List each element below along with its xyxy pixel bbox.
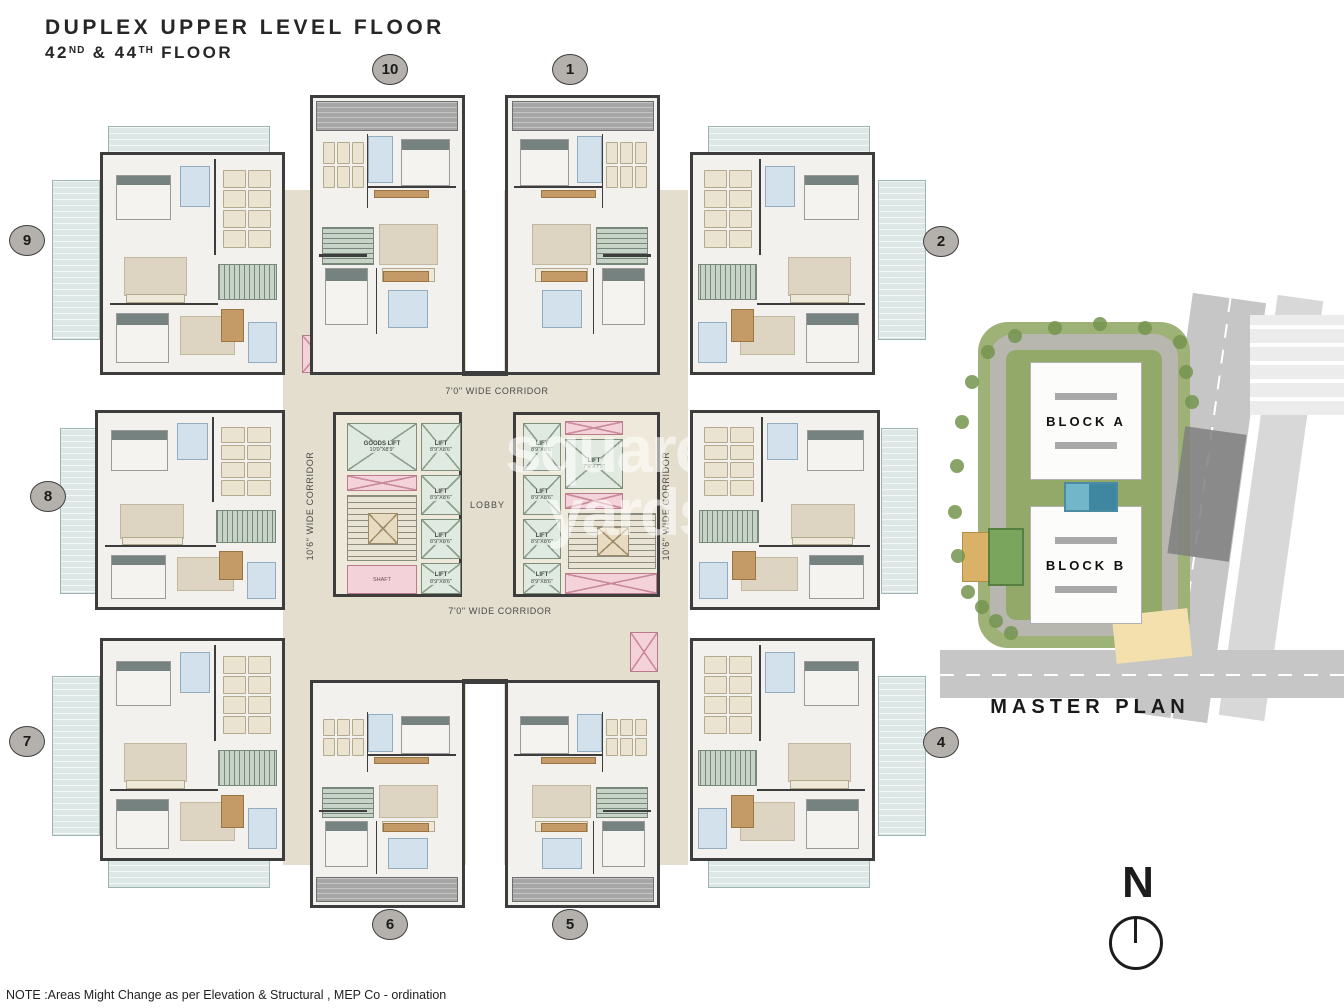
chair [729,656,752,674]
tree [989,614,1003,628]
chair [729,190,752,208]
inner-wall [105,545,215,547]
unit-stairs [218,264,277,301]
inner-wall [212,417,214,502]
inner-wall [368,186,456,189]
wardrobe [219,551,243,580]
unit-interior [693,413,877,607]
tree [951,549,965,563]
chair [337,738,349,756]
lift-cell: LIFT8'9"X8'6" [421,475,461,515]
living-rug [788,743,851,782]
bathroom [767,423,798,460]
unit-circle-1: 1 [552,54,588,85]
chair [730,462,754,478]
unit-interior [508,683,657,905]
unit-circle-4: 4 [923,727,959,758]
unit-circle-8: 8 [30,481,66,512]
bathroom [247,562,276,599]
dining-chairs [606,142,646,189]
bed-headboard [117,800,169,811]
unit-interior [103,641,282,858]
tree [1048,321,1062,335]
chair [620,738,632,756]
tree [1008,329,1022,343]
inner-wall [761,417,763,502]
unit-circle-7: 7 [9,726,45,757]
living-rug [124,257,187,296]
chair [221,462,245,478]
bed [520,716,569,754]
unit-2 [690,152,875,375]
chair [223,696,246,714]
living-rug [532,224,592,265]
bed-headboard [805,662,858,672]
bathroom [698,322,727,363]
chair [635,142,647,164]
inner-wall [593,821,594,874]
lift-cell: GOODS LIFT10'0"X8'9" [347,423,417,471]
dining-chairs [221,427,271,497]
block-a-label: BLOCK A [1031,414,1141,429]
wardrobe [383,271,429,282]
unit-interior [313,683,462,905]
tree [1138,321,1152,335]
inner-wall [603,254,651,257]
chair [247,427,271,443]
bed [809,555,864,600]
chair [352,738,364,756]
service-duct [347,475,417,491]
dining-chairs [704,170,752,248]
bed-headboard [117,314,169,325]
inner-wall [367,712,368,772]
chair [704,696,727,714]
sofa [122,537,183,545]
inner-wall [759,545,869,547]
chair [704,230,727,248]
chair [223,716,246,734]
tree [1179,365,1193,379]
bed-headboard [112,556,165,565]
bed [401,139,450,186]
swimming-pool [1064,482,1118,512]
tree [950,459,964,473]
inner-wall [759,159,761,254]
chair [337,719,349,737]
chair [247,462,271,478]
inner-wall [214,159,216,254]
play-area [962,532,990,582]
unit-stairs [699,510,760,543]
bed-headboard [807,800,859,811]
living-rug [120,504,184,539]
bed [807,430,864,471]
inner-wall [514,186,602,189]
inner-wall [757,303,864,306]
core-staircase [347,495,417,561]
wardrobe [221,309,244,342]
bed-headboard [805,176,858,186]
unit-stairs [218,750,277,787]
living-rug [788,257,851,296]
unit-stairs [596,227,648,265]
bathroom [698,808,727,849]
chair [704,210,727,228]
bed-headboard [402,140,449,150]
bathroom [177,423,208,460]
chair [248,230,271,248]
bed [116,799,170,849]
sofa [126,780,185,789]
dining-chairs [704,656,752,734]
bed [804,661,859,707]
bed [520,139,569,186]
bed-headboard [807,314,859,325]
bathroom [368,136,393,183]
block-b-label: BLOCK B [1031,558,1141,573]
unit-interior [693,641,872,858]
inner-wall [602,712,603,772]
wardrobe [541,823,587,832]
dining-chairs [323,719,363,757]
inner-wall [368,754,456,756]
chair [635,166,647,188]
inner-wall [367,134,368,208]
dining-chairs [223,656,271,734]
inner-wall [110,789,217,792]
unit-interior [98,413,282,607]
chair [247,445,271,461]
bed-headboard [808,431,863,440]
wardrobe [374,757,429,764]
inner-wall [603,810,651,812]
tree [981,345,995,359]
bathroom [542,838,582,869]
bathroom [542,290,582,328]
chair [323,142,335,164]
dining-chairs [223,170,271,248]
unit-5 [505,680,660,908]
inner-wall [319,810,367,812]
dining-chairs [704,427,754,497]
wall-segment [462,371,508,376]
chair [729,230,752,248]
terrace [52,180,100,340]
terrace [881,428,918,594]
wardrobe [374,190,429,198]
chair [704,716,727,734]
chair [635,738,647,756]
bed [806,799,860,849]
chair [223,210,246,228]
sofa [126,294,185,303]
wall-segment [462,679,508,684]
unit-interior [693,155,872,372]
terrace [60,428,97,594]
unit-8 [95,410,285,610]
tree [961,585,975,599]
unit-circle-5: 5 [552,909,588,940]
bathroom [248,322,277,363]
lift-cell: LIFT8'9"X8'6" [421,563,461,594]
chair [704,462,728,478]
parking-area [1250,315,1344,415]
bed-headboard [521,140,568,150]
unit-stairs [698,264,757,301]
chair [248,676,271,694]
unit-circle-2: 2 [923,226,959,257]
chair [337,142,349,164]
block-b-building: BLOCK B [1030,506,1142,624]
bathroom [180,652,210,693]
bed-headboard [603,269,644,281]
unit-stairs [216,510,277,543]
inner-wall [757,789,864,792]
chair [352,142,364,164]
wardrobe [541,271,587,282]
chair [248,696,271,714]
terrace [878,676,926,836]
inner-wall [376,821,377,874]
living-rug [791,504,855,539]
stair-landing [368,513,397,544]
bed-headboard [112,431,167,440]
chair [352,166,364,188]
bathroom [765,166,795,207]
chair [247,480,271,496]
bathroom [388,290,428,328]
tree [1185,395,1199,409]
unit-7 [100,638,285,861]
tree [1093,317,1107,331]
north-label: N [1118,858,1158,908]
unit-gap-top [466,190,504,371]
chair [730,445,754,461]
bed [401,716,450,754]
bed [116,175,171,221]
chair [223,656,246,674]
chair [223,230,246,248]
bed [602,268,645,326]
chair [620,719,632,737]
bed-headboard [810,556,863,565]
chair [606,719,618,737]
floorplan-canvas: DUPLEX UPPER LEVEL FLOOR 42ND & 44TH FLO… [0,0,1344,1008]
bathroom [180,166,210,207]
inner-wall [759,645,761,740]
chair [704,170,727,188]
inner-wall [514,754,602,756]
chair [248,170,271,188]
wardrobe [541,190,596,198]
chair [730,480,754,496]
note-text: NOTE :Areas Might Change as per Elevatio… [6,988,446,1002]
wardrobe [383,823,429,832]
bed [116,661,171,707]
unit-stairs [322,227,374,265]
unit-3 [690,410,880,610]
tree [975,600,989,614]
chair [223,170,246,188]
lift-core-left: GOODS LIFT10'0"X8'9"LIFT8'9"X8'6"LIFT8'9… [333,412,462,597]
dining-chairs [323,142,363,189]
balcony [316,101,458,131]
unit-interior [313,98,462,372]
lift-cell: LIFT8'9"X8'6" [421,519,461,559]
chair [729,170,752,188]
chair [729,716,752,734]
chair [704,480,728,496]
chair [704,190,727,208]
inner-wall [602,134,603,208]
unit-9 [100,152,285,375]
inner-wall [110,303,217,306]
wardrobe [541,757,596,764]
corridor-label-top: 7'0" WIDE CORRIDOR [397,386,597,396]
chair [323,738,335,756]
unit-circle-10: 10 [372,54,408,85]
bed-headboard [402,717,449,725]
bed [602,821,645,868]
unit-stairs [698,750,757,787]
unit-stairs [596,787,648,818]
tree [965,375,979,389]
master-plan-title: MASTER PLAN [990,696,1190,719]
sofa [790,294,849,303]
terrace [878,180,926,340]
tree [1173,335,1187,349]
bed [806,313,860,363]
unit-10 [310,95,465,375]
unit-interior [103,155,282,372]
chair [337,166,349,188]
terrace [52,676,100,836]
lift-cell: LIFT8'9"X8'6" [421,423,461,471]
watermark: square yards [505,418,713,543]
block-a-building: BLOCK A [1030,362,1142,480]
terrace [108,858,270,888]
service-duct [630,632,658,672]
bed [111,555,166,600]
bathroom [388,838,428,869]
chair [704,656,727,674]
inner-wall [319,254,367,257]
dining-chairs [606,719,646,757]
corridor-label-left: 10'6" WIDE CORRIDOR [305,431,321,581]
bed [325,268,368,326]
chair [248,716,271,734]
chair [606,142,618,164]
living-rug [379,785,439,818]
chair [606,166,618,188]
bed-headboard [117,176,170,186]
chair [729,676,752,694]
wardrobe [221,795,244,828]
bed [804,175,859,221]
chair [635,719,647,737]
bathroom [765,652,795,693]
tree [1004,626,1018,640]
tree [955,415,969,429]
shaft: SHAFT [347,565,417,594]
inner-wall [214,645,216,740]
bed [325,821,368,868]
bathroom [577,714,602,752]
bed-headboard [521,717,568,725]
compass-needle [1134,917,1137,943]
terrace [708,858,870,888]
unit-4 [690,638,875,861]
tree [948,505,962,519]
unit-interior [508,98,657,372]
chair [620,166,632,188]
bed-headboard [326,822,367,832]
unit-6 [310,680,465,908]
sofa [792,537,853,545]
chair [606,738,618,756]
bed-headboard [117,662,170,672]
chair [223,190,246,208]
bathroom [577,136,602,183]
chair [248,656,271,674]
chair [323,719,335,737]
chair [221,445,245,461]
unit-circle-9: 9 [9,225,45,256]
chair [620,142,632,164]
chair [352,719,364,737]
chair [704,676,727,694]
chair [223,676,246,694]
unit-gap-bottom [466,684,504,865]
chair [729,210,752,228]
bed-headboard [603,822,644,832]
sofa [790,780,849,789]
title-line1: DUPLEX UPPER LEVEL FLOOR [45,16,445,40]
chair [221,427,245,443]
living-rug [124,743,187,782]
lift-cell: LIFT8'9"X8'6" [523,563,561,594]
chair [248,190,271,208]
chair [221,480,245,496]
bathroom [248,808,277,849]
chair [730,427,754,443]
sports-court [988,528,1024,586]
balcony [512,877,654,901]
bed-headboard [326,269,367,281]
corridor-label-bottom: 7'0" WIDE CORRIDOR [400,606,600,616]
chair [704,445,728,461]
inner-wall [593,268,594,334]
chair [248,210,271,228]
living-rug [532,785,592,818]
unit-circle-6: 6 [372,909,408,940]
chair [729,696,752,714]
chair [323,166,335,188]
wardrobe [731,795,754,828]
inner-wall [376,268,377,334]
chair [704,427,728,443]
wardrobe [731,309,754,342]
bathroom [368,714,393,752]
bathroom [699,562,728,599]
bed [111,430,168,471]
living-rug [379,224,439,265]
unit-stairs [322,787,374,818]
balcony [316,877,458,901]
balcony [512,101,654,131]
unit-1 [505,95,660,375]
